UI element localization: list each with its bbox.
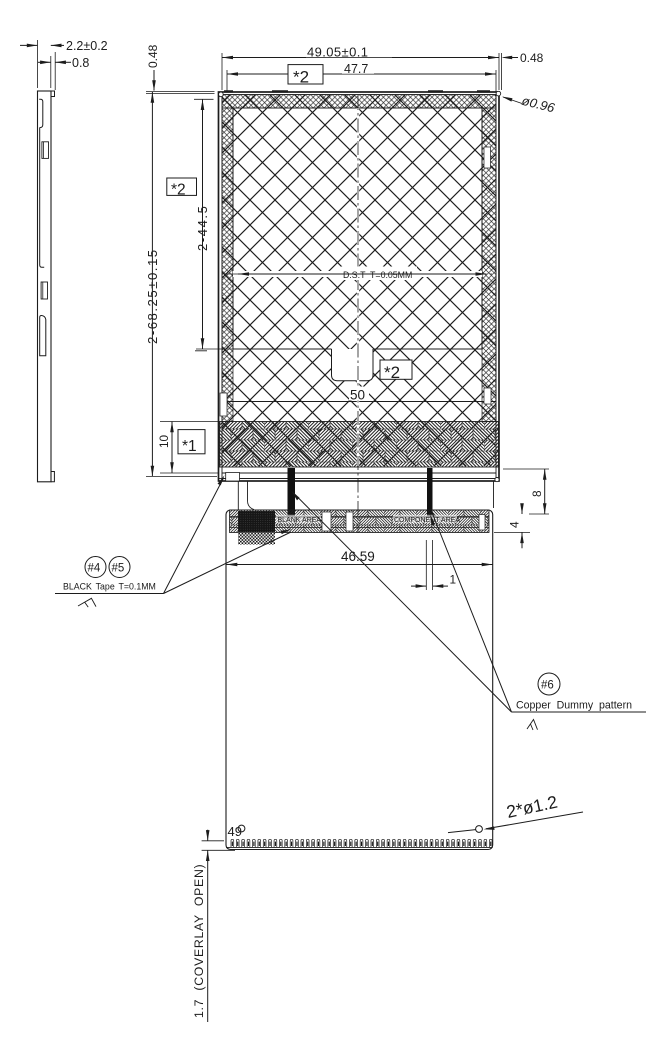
svg-text:*1: *1 (182, 438, 197, 455)
svg-text:2-68.25±0.15: 2-68.25±0.15 (145, 248, 160, 344)
svg-text:46.59: 46.59 (341, 549, 375, 564)
svg-text:*2: *2 (293, 68, 309, 87)
svg-text:BLACK Tape T=0.1MM: BLACK Tape T=0.1MM (63, 582, 156, 592)
svg-text:8: 8 (530, 490, 544, 497)
svg-text:#4: #4 (88, 563, 101, 575)
svg-text:D.S.T T=0.05MM: D.S.T T=0.05MM (343, 270, 412, 280)
svg-text:2.2±0.2: 2.2±0.2 (66, 39, 108, 53)
svg-text:0.48: 0.48 (520, 51, 544, 65)
svg-text:#5: #5 (112, 563, 125, 575)
svg-text:49.05±0.1: 49.05±0.1 (307, 45, 368, 60)
svg-text:49: 49 (228, 824, 242, 839)
svg-text:*2: *2 (384, 363, 400, 382)
svg-text:ø0.96: ø0.96 (520, 93, 557, 116)
svg-text:50: 50 (350, 388, 365, 403)
svg-text:0.8: 0.8 (72, 56, 89, 70)
svg-text:#6: #6 (541, 680, 554, 692)
svg-text:1.7 (COVERLAY OPEN): 1.7 (COVERLAY OPEN) (192, 864, 206, 1018)
svg-text:0.48: 0.48 (146, 44, 160, 68)
svg-text:BLANK AREA: BLANK AREA (278, 517, 322, 524)
svg-text:1: 1 (450, 573, 457, 587)
svg-text:4: 4 (508, 521, 522, 528)
svg-text:COMPONENT AREA: COMPONENT AREA (394, 517, 460, 524)
svg-text:47.7: 47.7 (344, 62, 368, 76)
svg-text:2-44.5: 2-44.5 (195, 205, 210, 251)
svg-text:10: 10 (157, 434, 171, 448)
svg-text:*2: *2 (171, 181, 186, 198)
svg-text:Copper Dummy pattern: Copper Dummy pattern (516, 700, 632, 712)
